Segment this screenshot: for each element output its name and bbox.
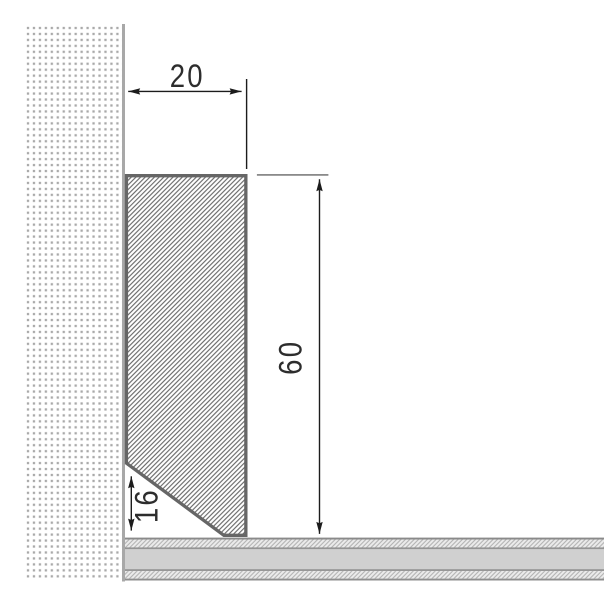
svg-text:60: 60 [273,340,308,375]
svg-text:20: 20 [170,59,205,94]
svg-text:16: 16 [129,488,164,523]
